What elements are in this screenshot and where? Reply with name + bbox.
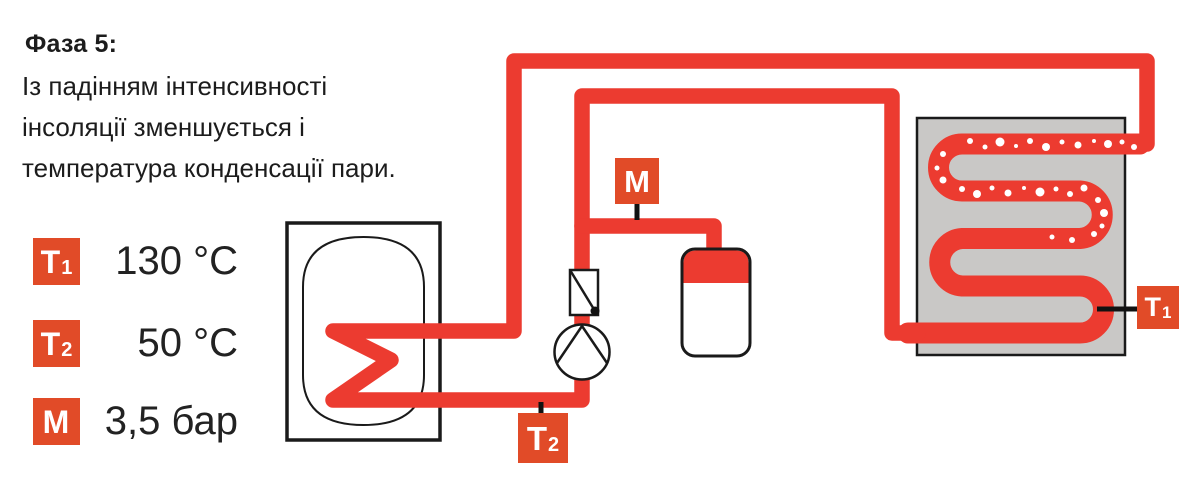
steam-bubble [935,166,940,171]
expansion-vessel [682,249,750,356]
legend-value-m: 3,5 бар [80,399,238,444]
legend-badge-t1-sub: 1 [61,258,72,278]
legend-badge-t2-sub: 2 [61,340,72,360]
steam-bubble [1131,144,1137,150]
phase-description-line: інсоляції зменшується і [22,107,492,148]
sensor-badge-t1-sub: 1 [1162,304,1171,321]
legend-badge-t2: T2 [33,320,80,367]
phase-description-line: Із падінням інтенсивності [22,66,492,107]
sensor-badge-t2-sub: 2 [548,435,559,455]
steam-bubble [1060,140,1065,145]
steam-bubble [967,138,973,144]
steam-bubble [940,177,947,184]
sensor-badge-t1: T1 [1137,286,1179,329]
legend-badge-m: M [33,398,80,445]
steam-bubble [1104,140,1112,148]
steam-bubble [1014,144,1018,148]
manometer-badge-label: M [624,166,650,197]
legend-value-t2: 50 °C [80,321,238,366]
steam-bubble [940,151,946,157]
steam-bubble [1054,187,1059,192]
legend-row-t1: T1 130 °C [33,238,238,285]
manometer-badge: M [615,158,659,204]
sensor-badge-t2: T2 [518,413,568,463]
steam-bubble [1100,224,1105,229]
pump [555,325,610,380]
steam-bubble [959,186,965,192]
steam-bubble [996,138,1005,147]
legend-badge-t2-label: T [41,328,61,360]
steam-bubble [1081,185,1088,192]
steam-bubble [1027,138,1033,144]
page-title: Фаза 5: [25,30,117,59]
phase-description-line: температура конденсації пари. [22,148,492,189]
phase-description: Із падінням інтенсивності інсоляції змен… [22,66,492,189]
legend-row-m: M 3,5 бар [33,398,238,445]
steam-bubble [1075,142,1082,149]
check-valve [570,270,600,316]
legend-badge-m-label: M [43,406,70,438]
steam-bubble [1036,188,1045,197]
steam-bubble [1005,190,1012,197]
steam-bubble [1100,209,1108,217]
legend-badge-t1: T1 [33,238,80,285]
expansion-vessel-gas-cushion [684,251,749,284]
pump-body [555,325,610,380]
legend-badge-t1-label: T [41,246,61,278]
steam-bubble [1095,197,1101,203]
steam-bubble [983,145,988,150]
steam-bubble [1050,235,1055,240]
sensor-badge-t1-label: T [1145,294,1162,321]
steam-bubble [1092,139,1096,143]
steam-bubble [990,186,995,191]
legend-row-t2: T2 50 °C [33,320,238,367]
sensor-badge-t2-label: T [527,422,547,455]
solar-system-phase-diagram: Фаза 5: Із падінням інтенсивності інсоля… [0,0,1200,500]
steam-bubble [1091,231,1097,237]
steam-bubble [1022,186,1026,190]
steam-bubble [973,190,981,198]
steam-bubble [1069,237,1075,243]
check-valve-pivot [591,307,600,316]
steam-bubble [1042,143,1050,151]
legend-value-t1: 130 °C [80,239,238,284]
steam-bubble [1120,140,1125,145]
steam-bubble [1067,191,1073,197]
